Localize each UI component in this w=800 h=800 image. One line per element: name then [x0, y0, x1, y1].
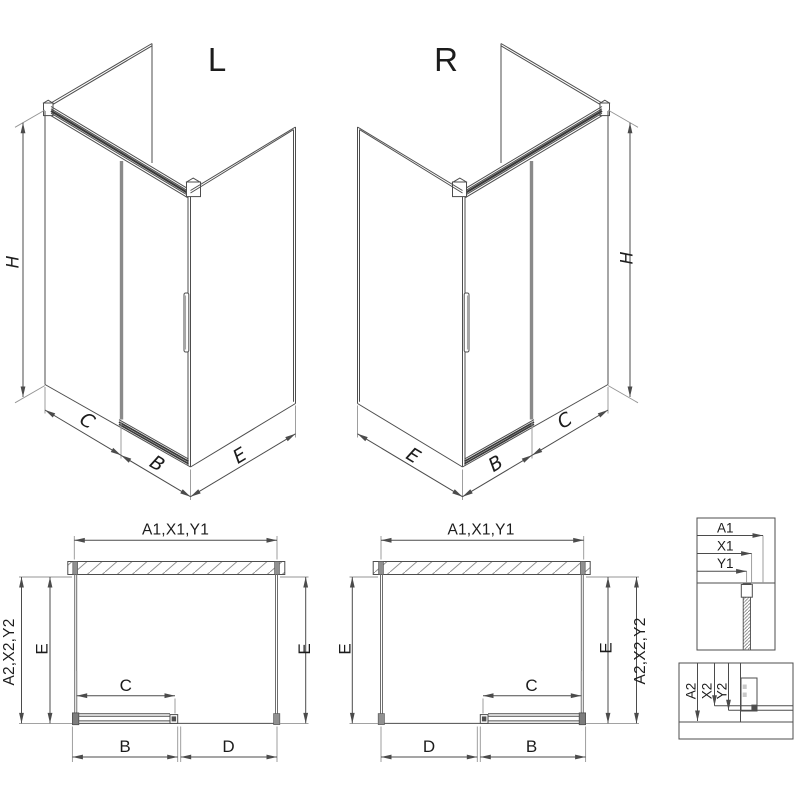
dim-label-b-left-plan: B	[119, 737, 130, 756]
iso-view-right	[358, 44, 639, 501]
detail-label-y2: Y2	[715, 683, 730, 700]
detail-depth-section	[679, 663, 793, 739]
technical-drawing-sheet: L H C B E R H C B E A1,X1,Y1 A2,X2,Y2 E …	[0, 0, 800, 800]
dim-label-d-right-plan: D	[423, 737, 435, 756]
detail-label-a1: A1	[717, 521, 734, 536]
dim-label-b-right-plan: B	[526, 737, 537, 756]
dim-label-c-iso-right: C	[554, 408, 577, 434]
dim-label-height-right: H	[618, 251, 638, 264]
detail-label-x1: X1	[717, 539, 734, 554]
shower-enclosure-drawing: L H C B E R H C B E A1,X1,Y1 A2,X2,Y2 E …	[0, 0, 800, 800]
dim-label-e2-right-plan: E	[597, 642, 616, 653]
wall-section-right-plan	[373, 562, 590, 575]
dim-label-e-iso-left: E	[229, 443, 251, 468]
config-label-left: L	[208, 41, 226, 78]
wall-profile-section	[741, 585, 752, 598]
dim-label-height-left: H	[4, 255, 24, 268]
dim-label-b-iso-left: B	[146, 451, 169, 477]
wall-section-left-plan	[68, 562, 285, 575]
dim-label-overall-depth-right-plan: A2,X2,Y2	[632, 617, 649, 684]
dim-label-e2-left-plan: E	[295, 643, 314, 654]
iso-view-left	[15, 44, 296, 501]
config-label-right: R	[434, 41, 458, 78]
dim-label-overall-width-right-plan: A1,X1,Y1	[447, 522, 514, 539]
detail-width-section	[697, 518, 775, 650]
dim-label-c-right-plan: C	[525, 676, 537, 695]
dim-label-overall-width-left-plan: A1,X1,Y1	[142, 522, 209, 539]
detail-label-a2: A2	[684, 683, 699, 700]
detail-label-x2: X2	[700, 683, 715, 700]
dim-label-c-left-plan: C	[120, 676, 132, 695]
dim-label-b-iso-right: B	[485, 451, 508, 477]
dim-label-e-iso-right: E	[402, 443, 424, 468]
dim-label-e1-right-plan: E	[336, 643, 355, 654]
detail-label-y1: Y1	[717, 556, 734, 571]
dim-label-overall-depth-left-plan: A2,X2,Y2	[1, 618, 18, 685]
dim-label-d-left-plan: D	[222, 737, 234, 756]
dim-label-e1-left-plan: E	[33, 643, 52, 654]
roller-section	[751, 705, 757, 711]
